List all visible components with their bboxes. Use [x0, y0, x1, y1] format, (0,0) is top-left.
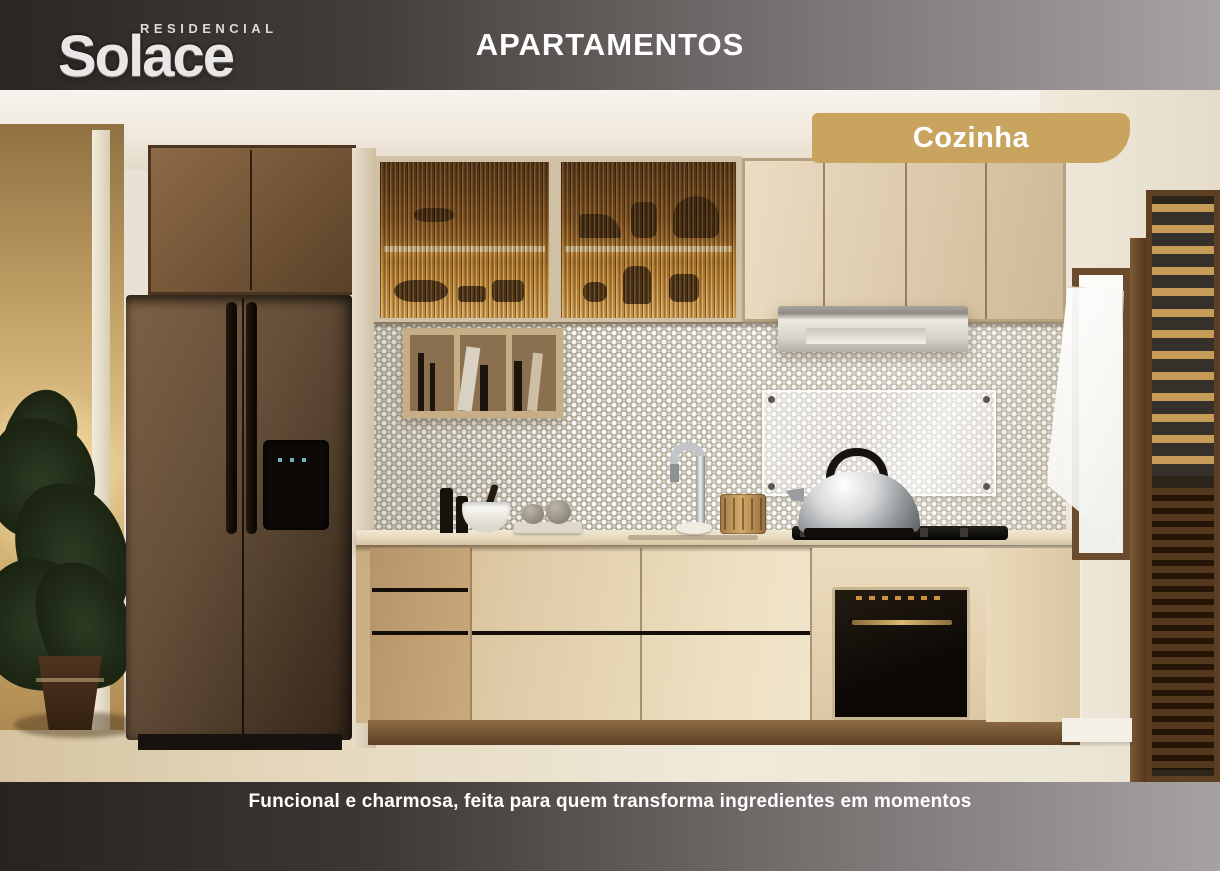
glass-display-cabinet [374, 156, 742, 324]
kettle-base [804, 528, 914, 537]
glass-cabinet-right [561, 162, 736, 318]
cabinet-door-seam [985, 161, 987, 319]
refrigerator-control-panel [263, 440, 329, 530]
glass-cabinet-left [380, 162, 549, 318]
drawer-groove [372, 631, 468, 635]
panel-fixing [983, 396, 990, 403]
door-glass-slats [1152, 204, 1214, 476]
panel-fixing [768, 483, 775, 490]
door-louver [1152, 488, 1214, 770]
cabinet-end-panel [986, 548, 1080, 722]
kitchen-photo [0, 90, 1220, 782]
panel-fixing [768, 396, 775, 403]
cabinet-door-seam [905, 161, 907, 319]
small-dish [676, 522, 712, 534]
refrigerator-handle-left [226, 302, 237, 534]
logo-brand: Solace [58, 28, 233, 86]
baseboard [1062, 718, 1132, 742]
cutting-board [458, 346, 481, 411]
cutting-board [527, 353, 543, 412]
cabinet-door-seam [823, 161, 825, 319]
window-mullion [1130, 238, 1146, 782]
upper-cabinets [742, 158, 1066, 322]
header-bar: RESIDENCIAL Solace APARTAMENTOS [0, 0, 1220, 90]
room-badge: Cozinha [812, 113, 1130, 163]
box-slats [724, 498, 762, 530]
plant-pot-band [36, 678, 104, 682]
room-badge-label: Cozinha [913, 122, 1029, 155]
built-in-oven [832, 587, 970, 720]
fluted-glass [380, 162, 549, 318]
cabinet-frame-divider [549, 162, 561, 318]
refrigerator-plinth [138, 734, 342, 750]
page-title: APARTAMENTOS [476, 27, 745, 63]
footer-caption: Funcional e charmosa, feita para quem tr… [248, 791, 971, 813]
open-shelf-unit [403, 328, 563, 418]
shelf-divider [506, 335, 512, 411]
fruit [522, 504, 544, 524]
refrigerator-display-lights [278, 458, 314, 462]
knife [480, 365, 488, 411]
bottle [514, 361, 522, 411]
drawer-groove [372, 588, 468, 592]
refrigerator-door-seam [242, 298, 244, 736]
wooden-utensil-box [720, 494, 766, 534]
brochure-page: RESIDENCIAL Solace APARTAMENTOS [0, 0, 1220, 871]
drawer-groove [472, 631, 810, 635]
cabinet-above-fridge [148, 145, 356, 295]
panel-fixing [983, 483, 990, 490]
sink-edge [628, 535, 758, 540]
balcony-door [1146, 190, 1220, 782]
brand-logo: RESIDENCIAL Solace [58, 12, 288, 84]
bottle [418, 353, 424, 411]
fruit [546, 500, 571, 524]
faucet-spout [670, 464, 679, 482]
fluted-glass [561, 162, 736, 318]
refrigerator-handle-right [246, 302, 257, 534]
oil-bottle [440, 488, 453, 533]
serving-board [514, 522, 582, 533]
toe-kick [368, 720, 1080, 745]
oven-display [856, 596, 944, 600]
oven-handle [852, 620, 952, 625]
range-hood-filter [806, 328, 926, 344]
cabinet-door-seam [250, 150, 252, 290]
footer-bar: Funcional e charmosa, feita para quem tr… [0, 782, 1220, 871]
bottle [430, 363, 435, 411]
